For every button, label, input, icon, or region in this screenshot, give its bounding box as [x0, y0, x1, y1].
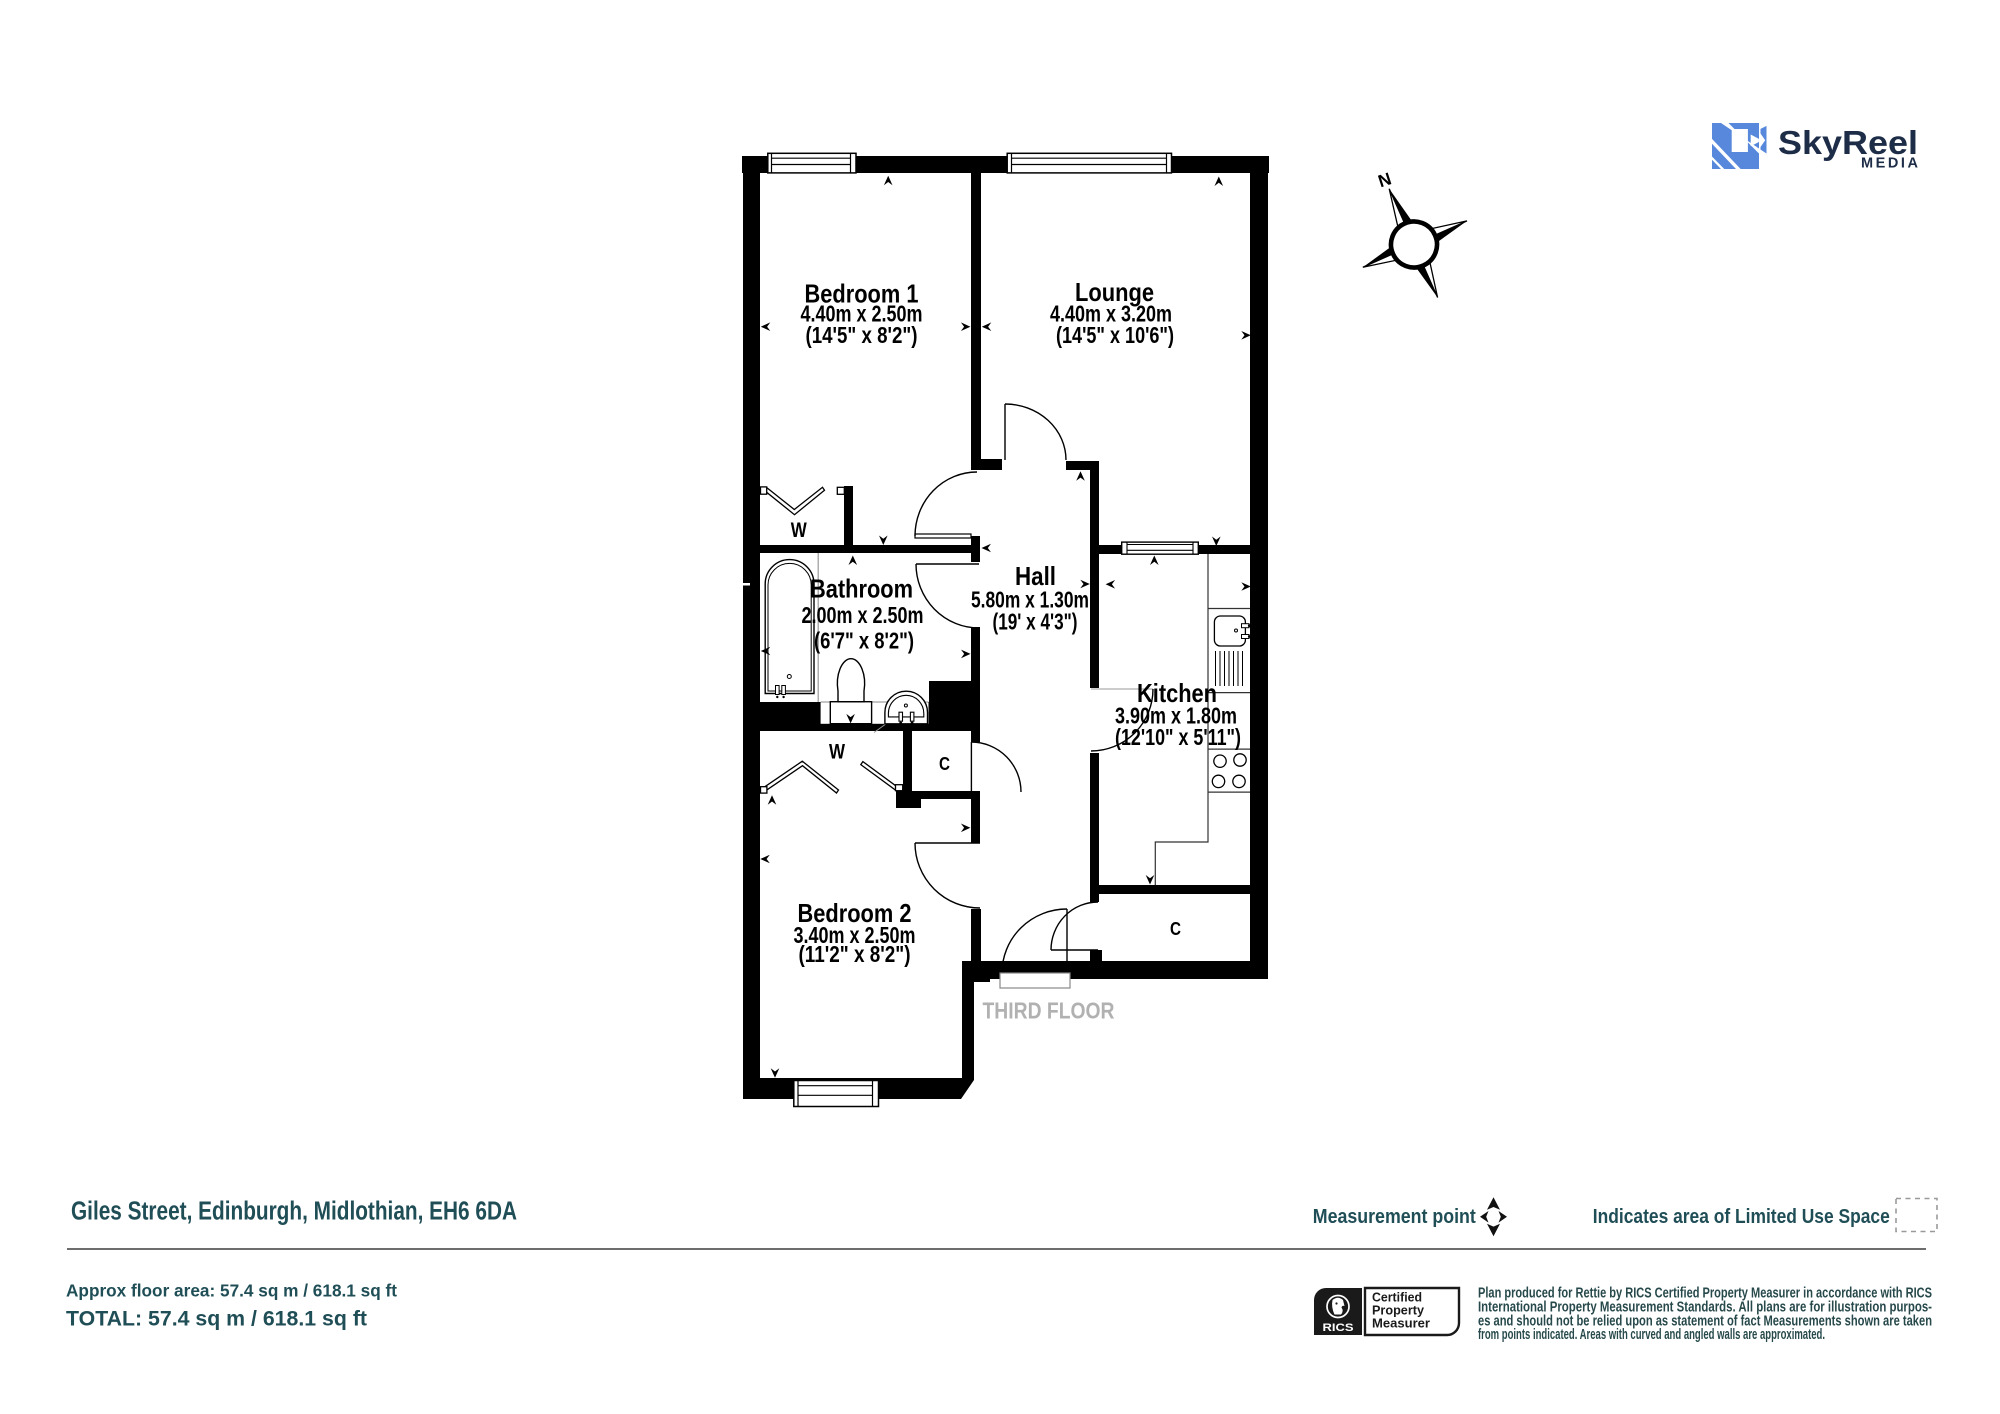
svg-text:RICS: RICS — [1323, 1322, 1354, 1334]
svg-text:(11'2" x 8'2"): (11'2" x 8'2") — [799, 941, 911, 967]
svg-text:TOTAL: 57.4 sq m / 618.1 sq ft: TOTAL: 57.4 sq m / 618.1 sq ft — [66, 1308, 367, 1331]
svg-text:(19' x 4'3"): (19' x 4'3") — [993, 609, 1078, 635]
svg-text:W: W — [791, 519, 807, 542]
svg-text:Property: Property — [1372, 1304, 1424, 1318]
svg-text:(12'10" x 5'11"): (12'10" x 5'11") — [1115, 724, 1241, 750]
svg-text:C: C — [939, 754, 950, 774]
svg-text:Bathroom: Bathroom — [810, 574, 913, 604]
svg-text:Giles Street, Edinburgh, Midlo: Giles Street, Edinburgh, Midlothian, EH6… — [71, 1198, 517, 1226]
svg-text:Indicates area of Limited Use: Indicates area of Limited Use Space — [1593, 1206, 1890, 1228]
svg-text:MEDIA: MEDIA — [1861, 156, 1919, 172]
svg-text:Measurement point: Measurement point — [1313, 1206, 1476, 1228]
svg-text:Approx floor area: 57.4 sq m /: Approx floor area: 57.4 sq m / 618.1 sq … — [66, 1281, 397, 1301]
svg-text:from points indicated. Areas w: from points indicated. Areas with curved… — [1478, 1327, 1825, 1343]
svg-text:(14'5" x 8'2"): (14'5" x 8'2") — [806, 322, 918, 348]
svg-text:(14'5" x 10'6"): (14'5" x 10'6") — [1056, 322, 1174, 348]
svg-text:W: W — [829, 741, 845, 764]
svg-text:(6'7" x 8'2"): (6'7" x 8'2") — [814, 628, 914, 654]
svg-text:2.00m x 2.50m: 2.00m x 2.50m — [802, 602, 924, 628]
svg-text:THIRD FLOOR: THIRD FLOOR — [983, 998, 1115, 1024]
svg-text:C: C — [1170, 919, 1181, 939]
svg-text:Certified: Certified — [1372, 1291, 1422, 1305]
svg-text:Measurer: Measurer — [1372, 1317, 1430, 1331]
svg-text:N: N — [1376, 168, 1394, 191]
